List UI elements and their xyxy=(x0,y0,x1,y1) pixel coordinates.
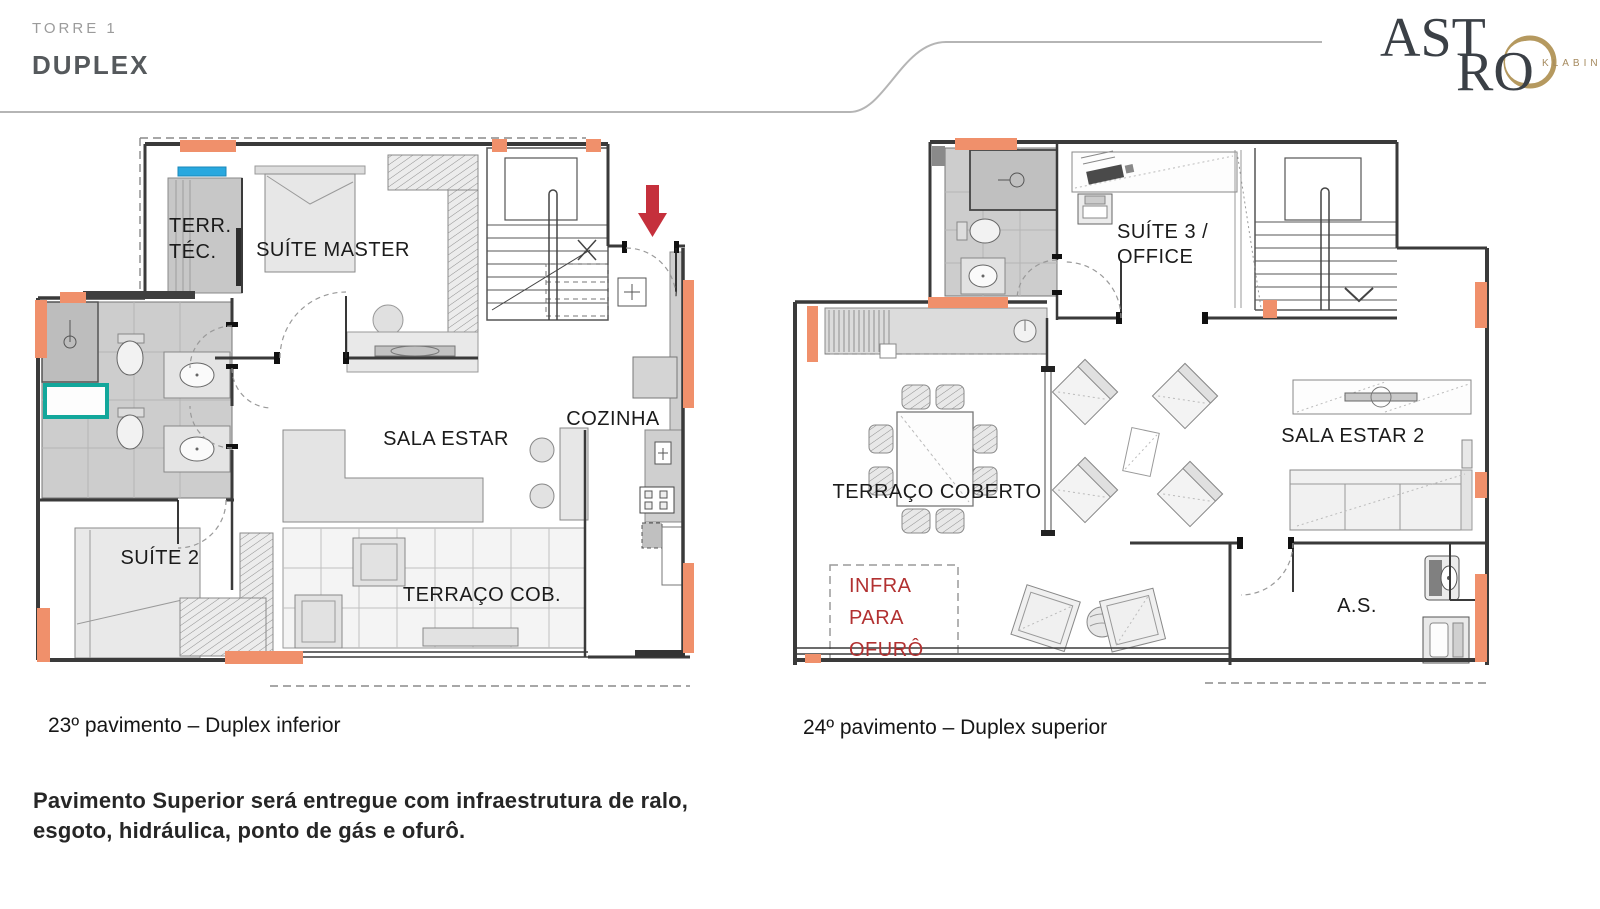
room-label-infra-1: INFRA xyxy=(849,575,912,597)
room-label-suite3-2: OFFICE xyxy=(1117,246,1193,268)
entry-arrow-icon xyxy=(638,185,667,237)
room-label-terraco-cob: TERRAÇO COB. xyxy=(403,584,561,606)
caption-upper: 24º pavimento – Duplex superior xyxy=(803,716,1107,740)
bench xyxy=(423,628,518,646)
room-label-as: A.S. xyxy=(1337,595,1377,617)
room-label-suite-master: SUÍTE MASTER xyxy=(256,238,410,261)
klabin-label: KLABIN xyxy=(1542,58,1600,69)
room-label-cozinha: COZINHA xyxy=(566,408,660,430)
wardrobe xyxy=(388,155,478,190)
staircase-upper xyxy=(1235,148,1397,310)
note-line-2: esgoto, hidráulica, ponto de gás e ofurô… xyxy=(33,816,688,846)
room-label-terraco-coberto: TERRAÇO COBERTO xyxy=(832,481,1041,503)
suite3-furniture xyxy=(1072,151,1237,224)
suite-master-furniture xyxy=(255,155,478,372)
floorplan-lower: TERR. TÉC. SUÍTE MASTER SALA ESTAR COZIN… xyxy=(30,130,695,695)
sala2-armchairs xyxy=(1052,359,1222,526)
pergola-strip xyxy=(825,308,1047,358)
fridge xyxy=(633,357,677,398)
bathroom-upper xyxy=(932,146,1057,296)
door-swings xyxy=(1017,260,1293,595)
delivery-note: Pavimento Superior será entregue com inf… xyxy=(33,786,688,846)
note-line-1: Pavimento Superior será entregue com inf… xyxy=(33,786,688,816)
caption-lower: 23º pavimento – Duplex inferior xyxy=(48,714,341,738)
room-label-sala-estar-2: SALA ESTAR 2 xyxy=(1281,425,1424,447)
sofa xyxy=(1290,470,1472,530)
bathtub-teal xyxy=(45,385,107,417)
astro-wordmark-bottom: RO xyxy=(1456,41,1534,103)
dining-set xyxy=(869,385,997,533)
room-label-infra-2: PARA xyxy=(849,607,904,629)
floorplan-upper: SUÍTE 3 / OFFICE TERRAÇO COBERTO SALA ES… xyxy=(785,130,1495,685)
staircase xyxy=(487,148,608,320)
sala2-furniture xyxy=(1290,380,1472,530)
wardrobe xyxy=(180,598,266,656)
toilet xyxy=(970,219,1000,243)
room-label-suite3-1: SUÍTE 3 / xyxy=(1117,220,1208,243)
room-label-suite-2: SUÍTE 2 xyxy=(120,546,199,569)
toilet xyxy=(117,341,143,375)
laundry-fixtures xyxy=(1423,556,1469,663)
room-label-sala-estar: SALA ESTAR xyxy=(383,428,509,450)
room-label-infra-3: OFURÔ xyxy=(849,638,924,661)
brand-logo: AST RO KLABIN xyxy=(1352,0,1600,112)
shower xyxy=(970,150,1057,210)
lounge-set xyxy=(1011,585,1166,652)
room-label-terr-tec-1: TERR. xyxy=(169,215,232,237)
toilet xyxy=(117,415,143,449)
room-label-terr-tec-2: TÉC. xyxy=(169,240,217,263)
window-blue xyxy=(178,167,226,176)
bathrooms xyxy=(42,302,232,498)
